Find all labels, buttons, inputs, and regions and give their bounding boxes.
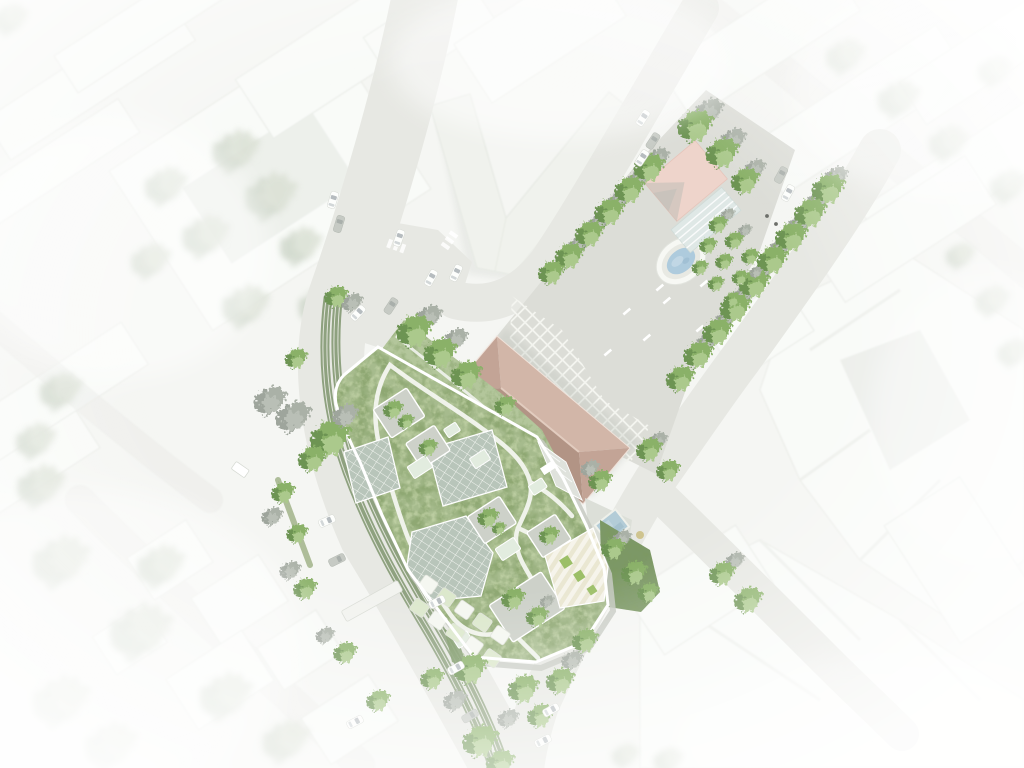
- bollard: [765, 214, 769, 218]
- aerial-site-plan: [0, 0, 1024, 768]
- grass-tuft: [636, 531, 644, 539]
- bollard: [774, 222, 778, 226]
- site-plan-rendering: [0, 0, 1024, 768]
